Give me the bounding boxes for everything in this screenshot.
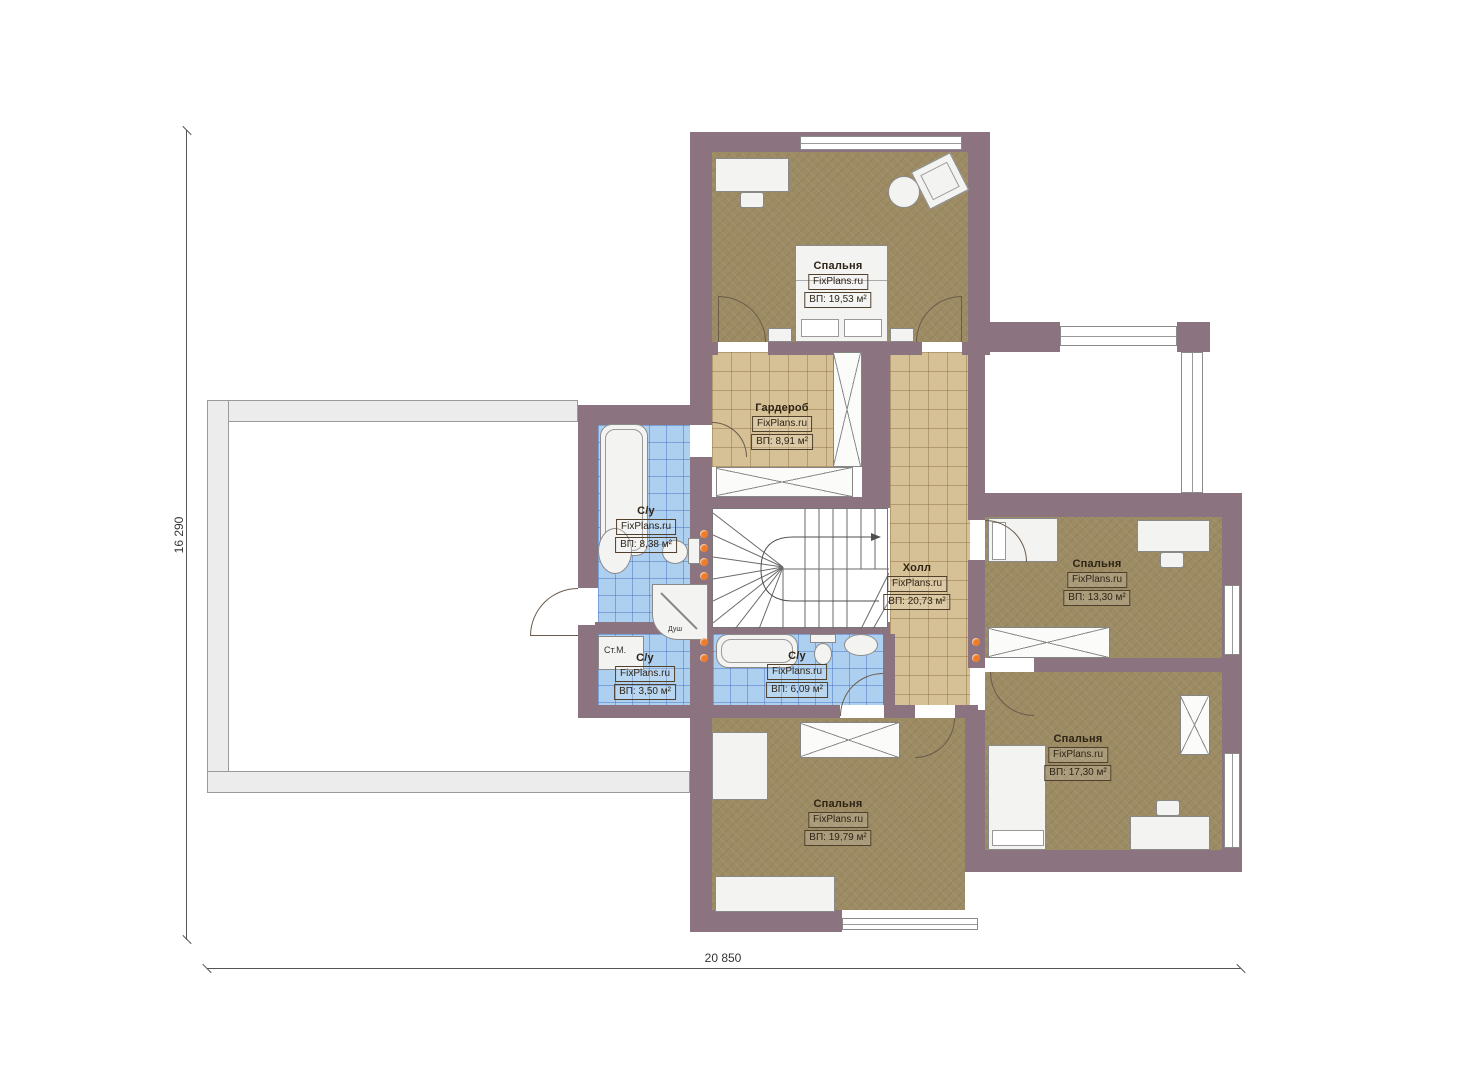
desk (715, 158, 789, 192)
wall (1177, 322, 1210, 352)
brand-label: FixPlans.ru (1067, 572, 1127, 588)
dresser (715, 876, 835, 912)
wall (985, 850, 1242, 872)
room-area: ВП: 8,38 м² (615, 537, 677, 553)
room-label-bedroom-top: Спальня FixPlans.ru ВП: 19,53 м² (804, 260, 871, 308)
room-label-bathroom-small: С/у FixPlans.ru ВП: 3,50 м² (614, 652, 676, 700)
staircase-treads (713, 509, 889, 629)
pillow (992, 830, 1044, 846)
room-name: Холл (883, 562, 950, 574)
brand-label: FixPlans.ru (615, 666, 675, 682)
room-name: Спальня (804, 260, 871, 272)
room-name: Спальня (1044, 733, 1111, 745)
wall (578, 405, 598, 588)
staircase (712, 508, 888, 628)
toilet-tank (688, 538, 700, 564)
shower-label: Душ (668, 626, 682, 633)
room-name: Гардероб (751, 402, 813, 414)
window (800, 136, 962, 150)
room-name: С/у (615, 505, 677, 517)
armchair-seat (920, 162, 959, 201)
brand-label: FixPlans.ru (808, 812, 868, 828)
terrace-band-top (207, 400, 578, 422)
room-label-bedroom-bottom-right: Спальня FixPlans.ru ВП: 17,30 м² (1044, 733, 1111, 781)
brand-label: FixPlans.ru (1048, 747, 1108, 763)
dimension-tick (182, 935, 191, 944)
bed (988, 745, 1046, 850)
wall (968, 132, 990, 322)
wall (1034, 658, 1242, 672)
wardrobe-cabinet (800, 722, 900, 758)
chair (740, 192, 764, 208)
cabinet (712, 732, 768, 800)
room-label-bathroom-middle: С/у FixPlans.ru ВП: 6,09 м² (766, 650, 828, 698)
window (1181, 352, 1203, 493)
room-label-hall: Холл FixPlans.ru ВП: 20,73 м² (883, 562, 950, 610)
heating-dot (700, 654, 708, 662)
room-name: С/у (614, 652, 676, 664)
floor-plan-canvas: Душ Ст.М. Спальня FixPlans.ru ВП: 19,53 … (0, 0, 1474, 1080)
room-area: ВП: 8,91 м² (751, 434, 813, 450)
toilet-tank (810, 634, 836, 643)
chair (1156, 800, 1180, 816)
room-label-wardrobe: Гардероб FixPlans.ru ВП: 8,91 м² (751, 402, 813, 450)
wall (712, 497, 890, 508)
wall (883, 634, 895, 705)
width-dimension: 20 850 (688, 951, 758, 965)
wall (690, 910, 842, 932)
room-area: ВП: 6,09 м² (766, 682, 828, 698)
door-arc-terrace (530, 588, 578, 636)
wall (965, 718, 985, 872)
room-area: ВП: 19,79 м² (804, 830, 871, 846)
wardrobe-cabinet (1180, 695, 1210, 755)
brand-label: FixPlans.ru (808, 274, 868, 290)
desk (1137, 520, 1210, 552)
heating-dot (972, 638, 980, 646)
room-area: ВП: 3,50 м² (614, 684, 676, 700)
brand-label: FixPlans.ru (752, 416, 812, 432)
room-name: Спальня (1063, 558, 1130, 570)
heating-dot (700, 558, 708, 566)
wall (968, 352, 985, 520)
wardrobe-cabinet (716, 467, 853, 497)
wall (690, 342, 718, 355)
wall (985, 493, 1242, 517)
heating-dot (972, 654, 980, 662)
door-leaf (718, 296, 719, 342)
room-name: Спальня (804, 798, 871, 810)
sink (844, 634, 878, 656)
terrace-band-left (207, 400, 229, 793)
room-area: ВП: 13,30 м² (1063, 590, 1130, 606)
brand-label: FixPlans.ru (616, 519, 676, 535)
terrace-band-bottom (207, 771, 690, 793)
brand-label: FixPlans.ru (767, 664, 827, 680)
horizontal-dimension-line (207, 968, 1241, 969)
room-area: ВП: 17,30 м² (1044, 765, 1111, 781)
window (1224, 585, 1240, 655)
wall (968, 560, 985, 668)
window (1060, 326, 1177, 346)
pillow (801, 319, 839, 337)
heating-dot (700, 530, 708, 538)
wall (955, 705, 978, 718)
door-leaf (961, 296, 962, 342)
heating-dot (700, 638, 708, 646)
heating-dot (700, 544, 708, 552)
wall (862, 352, 890, 508)
window (1224, 753, 1240, 848)
heating-dot (700, 572, 708, 580)
door-leaf (530, 635, 578, 636)
height-dimension: 16 290 (172, 504, 186, 566)
wall (690, 132, 712, 422)
room-label-bedroom-right: Спальня FixPlans.ru ВП: 13,30 м² (1063, 558, 1130, 606)
wardrobe-cabinet (988, 627, 1110, 658)
vertical-dimension-line (186, 130, 187, 940)
nightstand (768, 328, 792, 342)
room-name: С/у (766, 650, 828, 662)
window (842, 918, 978, 930)
wardrobe-cabinet (833, 352, 862, 467)
pillow (844, 319, 882, 337)
desk (1130, 816, 1210, 850)
wall (884, 705, 915, 718)
wall (968, 322, 1060, 352)
room-label-bathroom-left: С/у FixPlans.ru ВП: 8,38 м² (615, 505, 677, 553)
wall (578, 405, 712, 425)
wall (690, 705, 840, 718)
room-area: ВП: 20,73 м² (883, 594, 950, 610)
room-area: ВП: 19,53 м² (804, 292, 871, 308)
brand-label: FixPlans.ru (887, 576, 947, 592)
nightstand (890, 328, 914, 342)
dimension-tick (182, 126, 191, 135)
wall (690, 718, 712, 932)
chair (1160, 552, 1184, 568)
room-label-bedroom-bottom: Спальня FixPlans.ru ВП: 19,79 м² (804, 798, 871, 846)
floor-hall (890, 352, 970, 705)
